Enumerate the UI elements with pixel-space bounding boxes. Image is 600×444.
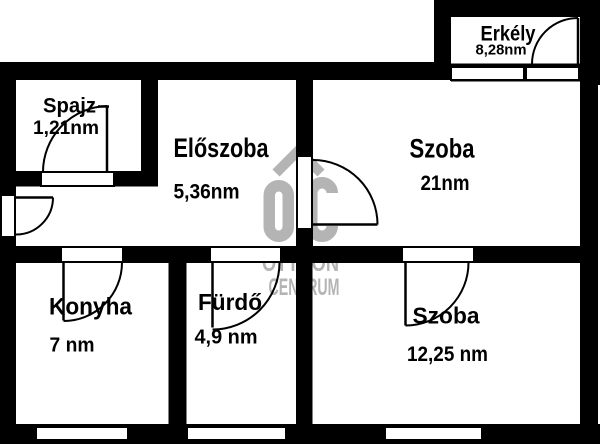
- svg-text:1,21nm: 1,21nm: [33, 118, 99, 139]
- svg-text:Fürdő: Fürdő: [198, 289, 262, 315]
- svg-text:Szoba: Szoba: [413, 303, 481, 329]
- svg-text:4,9 nm: 4,9 nm: [195, 327, 258, 349]
- svg-text:Konyha: Konyha: [49, 294, 133, 321]
- svg-text:12,25 nm: 12,25 nm: [407, 343, 488, 366]
- svg-text:7 nm: 7 nm: [50, 334, 95, 357]
- svg-text:Szoba: Szoba: [410, 134, 476, 164]
- svg-text:21nm: 21nm: [421, 172, 470, 195]
- svg-text:Előszoba: Előszoba: [174, 133, 270, 163]
- svg-text:Spajz: Spajz: [43, 95, 96, 118]
- svg-text:5,36nm: 5,36nm: [174, 181, 240, 204]
- svg-text:8,28nm: 8,28nm: [476, 42, 527, 59]
